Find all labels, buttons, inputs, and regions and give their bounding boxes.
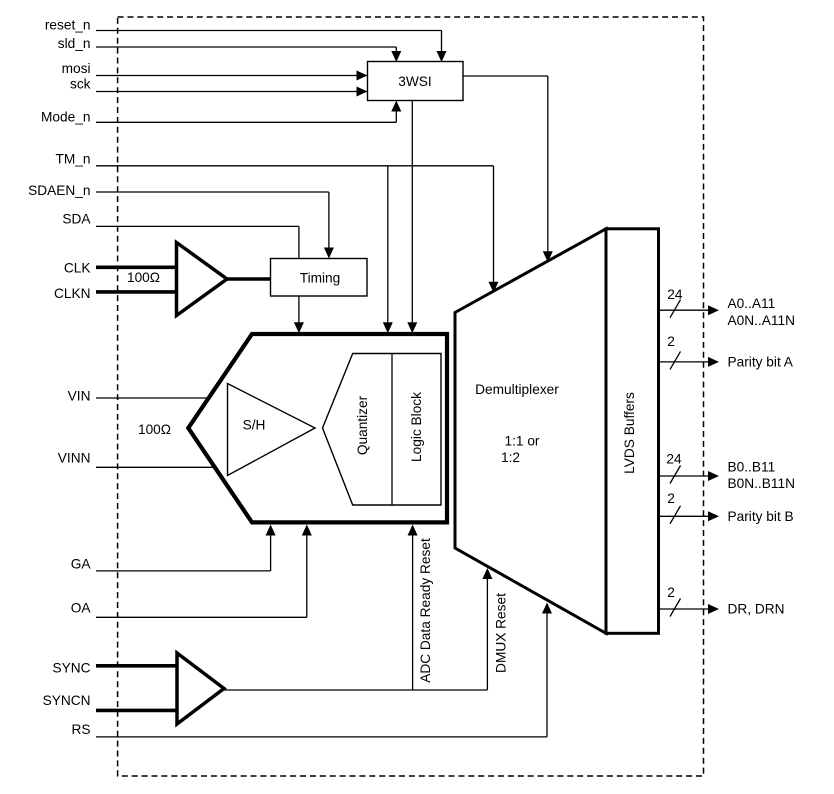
svg-text:VIN: VIN [68, 388, 91, 403]
svg-text:SYNCN: SYNCN [43, 693, 91, 708]
svg-text:LVDS Buffers: LVDS Buffers [622, 392, 637, 474]
svg-text:CLKN: CLKN [54, 286, 91, 301]
svg-text:SDAEN_n: SDAEN_n [28, 183, 90, 198]
svg-text:sck: sck [70, 77, 91, 92]
svg-text:OA: OA [71, 601, 92, 616]
svg-text:VINN: VINN [58, 451, 91, 466]
svg-text:100Ω: 100Ω [138, 422, 171, 437]
svg-text:Mode_n: Mode_n [41, 110, 90, 125]
svg-text:A0..A11: A0..A11 [728, 296, 776, 311]
svg-text:Parity bit A: Parity bit A [728, 354, 794, 369]
svg-text:Parity bit B: Parity bit B [728, 509, 794, 524]
svg-text:S/H: S/H [243, 418, 266, 433]
svg-text:SDA: SDA [62, 212, 91, 227]
svg-text:GA: GA [71, 557, 92, 572]
svg-text:2: 2 [667, 585, 675, 600]
svg-text:24: 24 [666, 451, 682, 466]
svg-text:DR, DRN: DR, DRN [728, 602, 785, 617]
svg-text:2: 2 [667, 334, 675, 349]
svg-text:1:1 or: 1:1 or [504, 434, 539, 449]
svg-text:2: 2 [667, 491, 675, 506]
svg-text:Quantizer: Quantizer [355, 395, 370, 455]
svg-text:B0N..B11N: B0N..B11N [728, 476, 795, 491]
svg-text:B0..B11: B0..B11 [728, 460, 776, 475]
svg-text:3WSI: 3WSI [398, 74, 431, 89]
svg-text:A0N..A11N: A0N..A11N [728, 313, 795, 328]
svg-text:SYNC: SYNC [52, 661, 90, 676]
svg-text:Demultiplexer: Demultiplexer [475, 382, 559, 397]
svg-text:DMUX Reset: DMUX Reset [494, 593, 509, 673]
svg-text:100Ω: 100Ω [127, 270, 160, 285]
svg-text:reset_n: reset_n [45, 18, 91, 33]
svg-text:24: 24 [667, 287, 683, 302]
svg-text:ADC Data Ready Reset: ADC Data Ready Reset [418, 538, 433, 683]
svg-text:sld_n: sld_n [58, 36, 91, 51]
svg-text:Timing: Timing [300, 270, 341, 285]
svg-text:Logic Block: Logic Block [409, 392, 424, 462]
svg-text:TM_n: TM_n [56, 152, 91, 167]
svg-text:mosi: mosi [62, 61, 91, 76]
svg-text:RS: RS [71, 722, 90, 737]
svg-text:1:2: 1:2 [501, 450, 520, 465]
svg-text:CLK: CLK [64, 261, 91, 276]
